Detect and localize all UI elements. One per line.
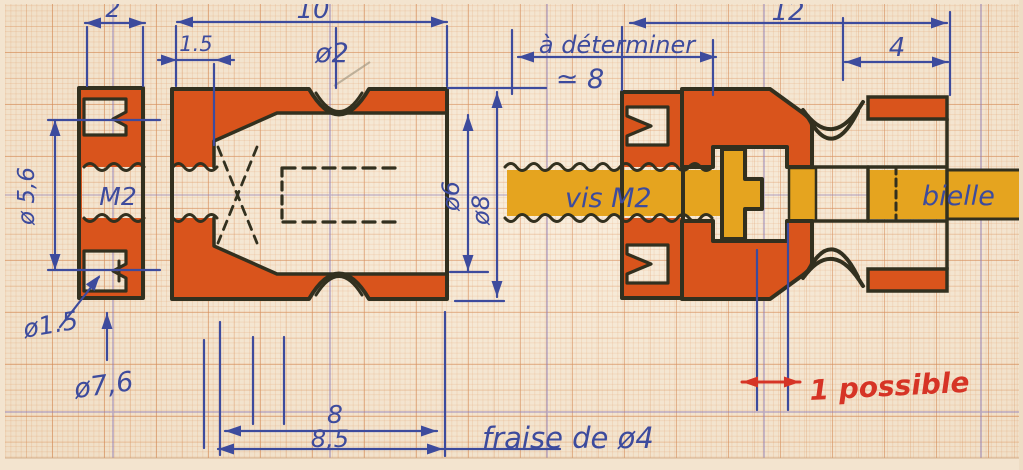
note-fraise: fraise de ø4 xyxy=(482,421,654,455)
dim-approx-8: ≃ 8 xyxy=(556,64,604,95)
body-top-right-bar xyxy=(868,97,947,119)
dim-8-5: 8,5 xyxy=(311,425,349,453)
dim-dia2: ø2 xyxy=(314,38,349,69)
note-1-possible: 1 possible xyxy=(809,366,971,407)
red-annotation: 1 possible xyxy=(742,366,970,407)
body-bottom-right-bar xyxy=(868,269,947,291)
thread-label-m2: M2 xyxy=(99,182,136,211)
screw-head-end xyxy=(789,168,816,221)
end-view-upper-slot xyxy=(84,99,126,135)
dim-dia1-5: ø1.5 xyxy=(20,306,80,344)
dim-4: 4 xyxy=(889,33,906,63)
label-vis-m2: vis M2 xyxy=(565,183,652,214)
dim-dia5-6: ø 5,6 xyxy=(14,167,40,226)
dim-dia6: ø6 xyxy=(437,181,465,212)
technical-drawing-scan: 2 10 1.5 ø2 à déterminer ≃ 8 12 4 ø 5,6 … xyxy=(0,0,1023,470)
dim-12: 12 xyxy=(771,0,804,27)
section-notch-inner-arcs xyxy=(316,93,362,295)
label-bielle: bielle xyxy=(922,181,995,212)
dim-dia8: ø8 xyxy=(467,195,495,226)
screw-head xyxy=(722,149,762,239)
dim-1-5: 1.5 xyxy=(179,32,212,56)
dim-dia7-6: ø7,6 xyxy=(71,366,135,405)
scanned-graph-paper-sheet: 2 10 1.5 ø2 à déterminer ≃ 8 12 4 ø 5,6 … xyxy=(0,0,1023,470)
dim-a-determiner: à déterminer xyxy=(539,31,697,59)
